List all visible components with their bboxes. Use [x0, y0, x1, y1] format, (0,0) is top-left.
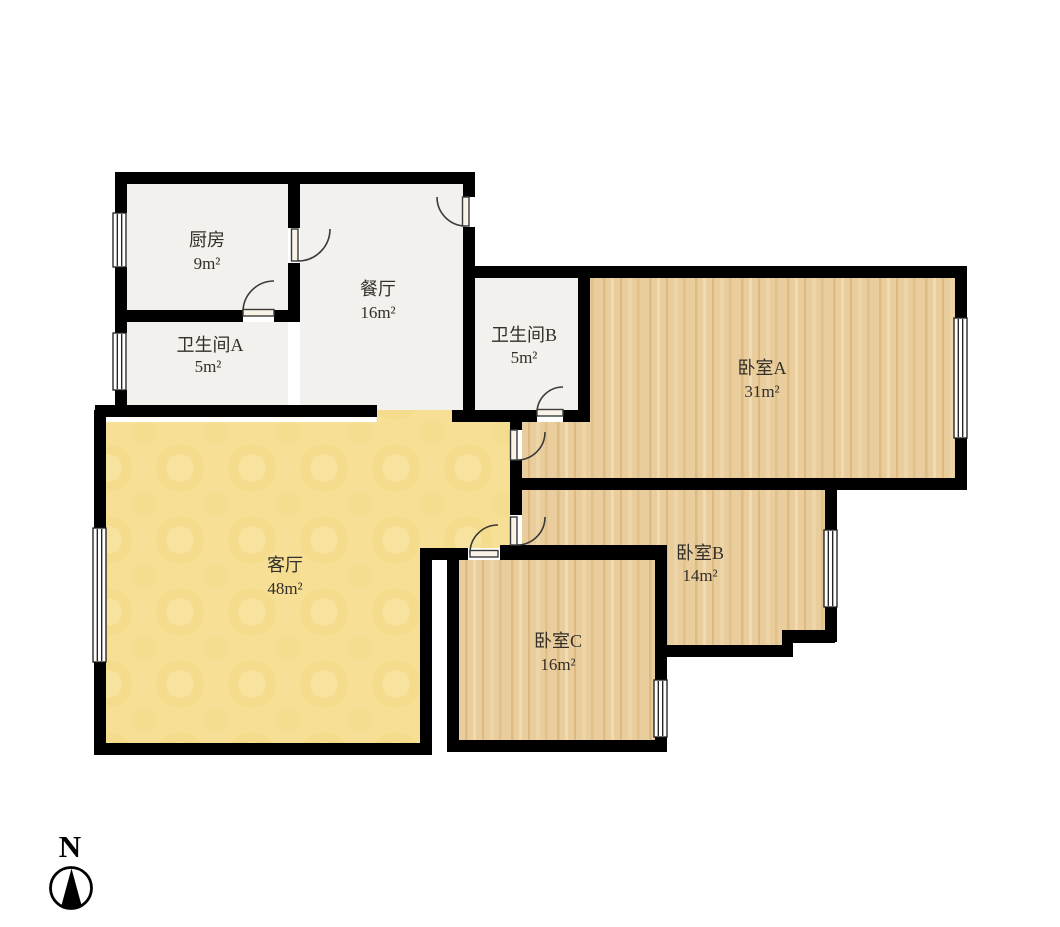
wall-segment: [658, 645, 793, 657]
room-name: 厨房: [189, 230, 225, 250]
wall-segment: [655, 548, 667, 680]
wall-segment: [463, 172, 475, 197]
window-bedroom-c-icon: [654, 680, 667, 737]
room-name: 卧室A: [738, 358, 787, 378]
window-bedroom-a-icon: [954, 318, 967, 438]
window-living-room-icon: [93, 528, 106, 662]
tile-floors: [127, 184, 578, 410]
door-leaf: [511, 430, 518, 460]
wall-segment: [94, 662, 106, 755]
room-name: 卫生间B: [491, 325, 557, 345]
room-name: 客厅: [267, 555, 303, 575]
wall-segment: [115, 267, 127, 333]
wall-segment: [825, 478, 837, 530]
wall-segment: [955, 266, 967, 318]
wall-segment: [274, 310, 300, 322]
wall-segment: [500, 545, 667, 560]
room-area: 5m²: [195, 357, 222, 376]
floor-plan-page: 厨房 9m² 卫生间A 5m² 餐厅 16m² 卫生间B 5m² 卧室A 31m…: [0, 0, 1060, 927]
wall-segment: [288, 172, 300, 228]
wall-segment: [463, 227, 475, 422]
wall-segment: [95, 405, 377, 417]
wall-segment: [115, 310, 243, 322]
room-area: 16m²: [540, 655, 575, 674]
wall-segment: [452, 410, 537, 422]
window-bathroom-a-icon: [113, 333, 126, 390]
wall-segment: [420, 548, 432, 755]
door-leaf: [537, 410, 563, 417]
room-area: 48m²: [267, 579, 302, 598]
door-leaf: [511, 517, 518, 545]
room-name: 卧室B: [676, 543, 724, 563]
door-leaf: [292, 229, 299, 261]
wall-segment: [463, 266, 967, 278]
wall-segment: [94, 410, 106, 528]
room-name: 卫生间A: [177, 335, 244, 355]
door-leaf: [463, 197, 470, 226]
wall-segment: [578, 266, 590, 422]
room-area: 5m²: [511, 348, 538, 367]
window-bedroom-b-icon: [824, 530, 837, 607]
window-kitchen-icon: [113, 213, 126, 267]
door-leaf: [470, 551, 498, 558]
wall-segment: [510, 478, 967, 490]
room-name: 卧室C: [534, 631, 582, 651]
room-area: 9m²: [194, 254, 221, 273]
room-name: 餐厅: [360, 279, 396, 299]
wall-segment: [447, 548, 459, 752]
wall-segment: [510, 418, 522, 430]
wall-segment: [447, 740, 667, 752]
floor-plan-canvas: 厨房 9m² 卫生间A 5m² 餐厅 16m² 卫生间B 5m² 卧室A 31m…: [0, 0, 1060, 927]
compass-needle: [61, 869, 82, 908]
wall-segment: [563, 410, 590, 422]
wall-segment: [95, 743, 432, 755]
room-area: 14m²: [682, 566, 717, 585]
wall-segment: [115, 172, 127, 213]
compass-north-label: N: [59, 829, 81, 864]
wall-segment: [510, 460, 522, 515]
door-leaf: [243, 310, 274, 317]
compass-north-icon: N: [51, 829, 92, 909]
room-area: 31m²: [744, 382, 779, 401]
room-area: 16m²: [360, 303, 395, 322]
